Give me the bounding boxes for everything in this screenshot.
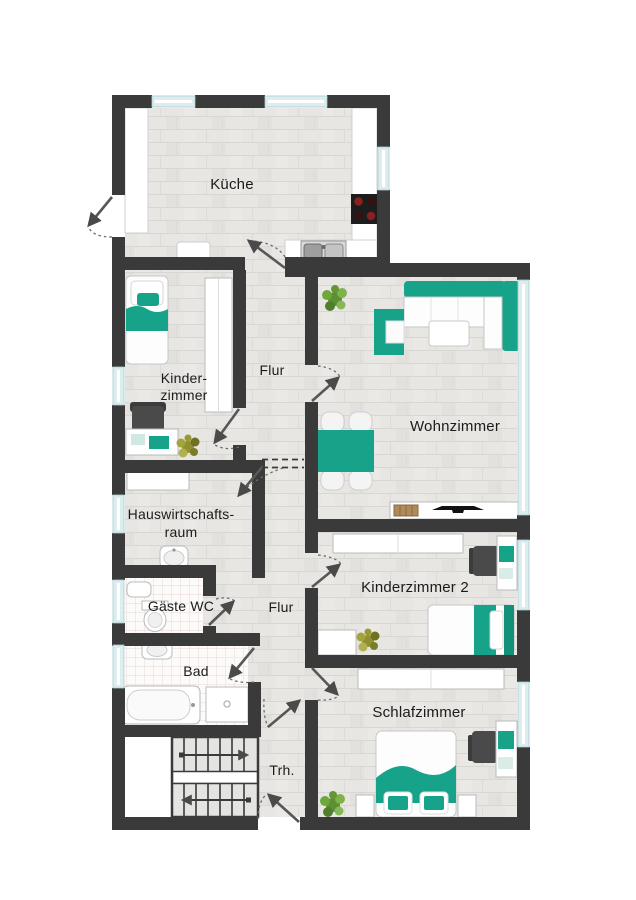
window (113, 645, 124, 688)
coffee-table-icon (429, 321, 469, 346)
label-hwr-line1: Hauswirtschafts- (128, 506, 235, 522)
closet-niche (318, 630, 356, 655)
window (113, 367, 124, 405)
kitchen-counter-left (125, 108, 148, 233)
label-kinderzimmer-line2: zimmer (160, 387, 207, 403)
window (518, 540, 529, 610)
label-bad: Bad (183, 663, 209, 679)
window (518, 682, 529, 747)
single-bed-icon (126, 276, 168, 364)
label-wohnzimmer: Wohnzimmer (410, 418, 500, 435)
door-kueche-exterior (88, 197, 112, 237)
label-flur-lower: Flur (269, 599, 294, 615)
label-treppenhaus: Trh. (269, 762, 294, 778)
floor-plan-drawing: Küche Kinder- zimmer Flur Wohnzimmer Hau… (0, 0, 636, 900)
window (518, 280, 529, 515)
label-hwr-line2: raum (165, 524, 198, 540)
wardrobe-icon (358, 669, 504, 689)
closet-icon (127, 472, 189, 490)
stove-icon (351, 194, 378, 224)
window (152, 96, 195, 107)
label-kinderzimmer-line1: Kinder- (161, 370, 208, 386)
floor-plan: Küche Kinder- zimmer Flur Wohnzimmer Hau… (0, 0, 636, 900)
wardrobe-icon (333, 534, 463, 553)
hand-basin-icon (127, 582, 151, 597)
floor-stair-sideroom (125, 737, 172, 817)
window (378, 147, 389, 190)
label-schlafzimmer: Schlafzimmer (372, 704, 465, 721)
window (113, 580, 124, 623)
single-bed-icon (428, 605, 514, 655)
label-flur-upper: Flur (260, 362, 285, 378)
window (113, 495, 124, 533)
window (265, 96, 327, 107)
armchair-icon (374, 309, 404, 355)
label-kueche: Küche (210, 176, 254, 193)
staircase (172, 737, 258, 817)
shower-icon (206, 687, 248, 722)
label-gaeste-wc: Gäste WC (148, 598, 214, 614)
bathtub-icon (122, 686, 200, 724)
utility-sink-icon (160, 546, 188, 568)
sideboard-icon (390, 502, 528, 519)
wardrobe-icon (205, 278, 232, 412)
label-kinderzimmer2: Kinderzimmer 2 (361, 579, 469, 596)
